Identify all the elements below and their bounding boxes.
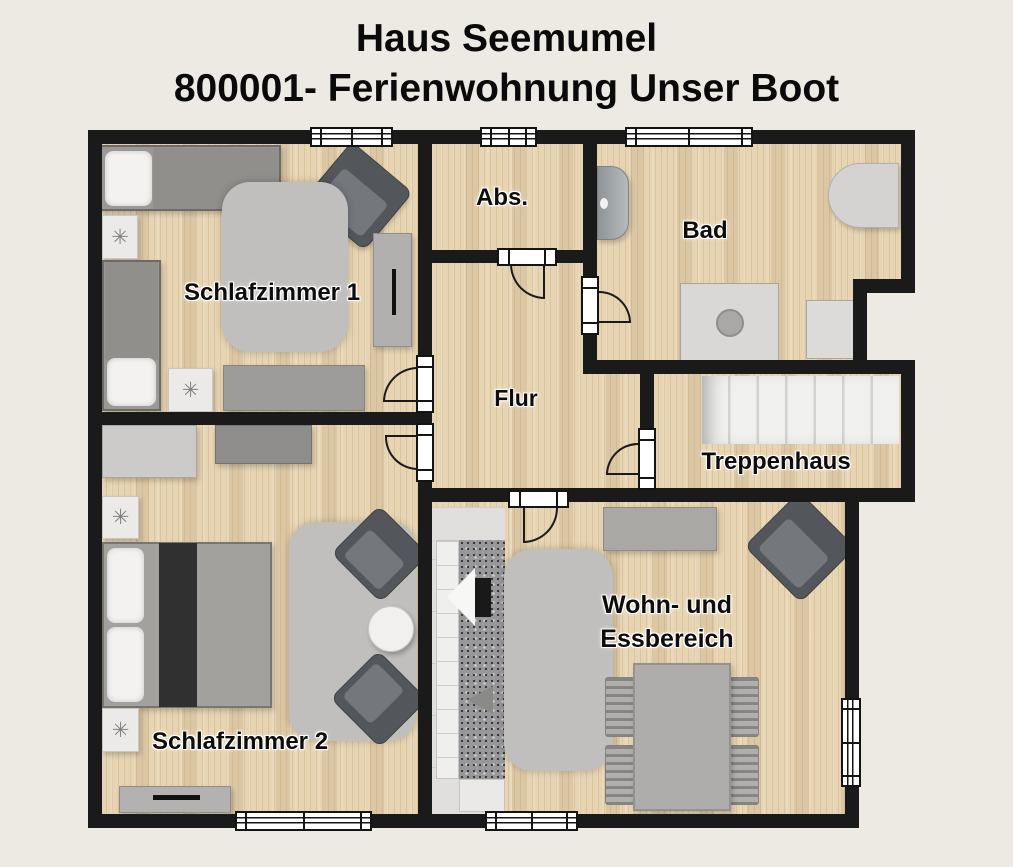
dining-table (633, 663, 731, 811)
window-schlafzimmer1 (310, 127, 393, 147)
nightstand: ✳ (102, 496, 139, 539)
plan-title-line2: 800001- Ferienwohnung Unser Boot (0, 64, 1013, 114)
label-schlafzimmer1: Schlafzimmer 1 (184, 276, 360, 310)
window-wohnbereich-right (841, 698, 861, 787)
plan-title: Haus Seemumel 800001- Ferienwohnung Unse… (0, 14, 1013, 114)
nightstand: ✳ (168, 368, 213, 412)
door-leaf (385, 435, 418, 437)
counter-end-cabinet (459, 779, 505, 812)
sideboard (603, 507, 717, 551)
door-leaf (543, 264, 545, 299)
sideboard (373, 233, 412, 347)
dining-chair (605, 677, 635, 737)
pillow (107, 627, 144, 702)
label-wohn-line2: Essbereich (600, 622, 733, 656)
door-leaf (606, 473, 638, 475)
shower-drain (716, 309, 744, 337)
sideboard-handle (153, 795, 200, 800)
label-treppenhaus: Treppenhaus (701, 445, 850, 479)
single-bed-2 (102, 260, 161, 411)
tv-screen (475, 578, 491, 617)
door-leaf (599, 321, 631, 323)
label-schlafzimmer2: Schlafzimmer 2 (152, 725, 328, 759)
nightstand: ✳ (102, 708, 139, 752)
label-wohn-line1: Wohn- und (600, 588, 733, 622)
wall-exterior-bottom (88, 814, 859, 828)
shower (680, 283, 779, 361)
door-wohnbereich (508, 490, 569, 508)
bench (223, 365, 365, 411)
floor-plan-page: { "title": { "line1": "Haus Seemumel", "… (0, 0, 1013, 867)
round-side-table (368, 606, 414, 652)
label-abstellraum: Abs. (476, 181, 528, 215)
label-flur: Flur (494, 381, 537, 415)
washing-machine (806, 300, 857, 359)
door-schlafzimmer2 (416, 423, 434, 482)
pillow (107, 548, 144, 623)
sideboard (119, 786, 231, 813)
label-bad: Bad (682, 214, 727, 248)
decor-star-icon: ✳ (182, 380, 200, 401)
wall-bedrooms-divider (88, 412, 432, 425)
decor-star-icon: ✳ (112, 720, 130, 741)
toilet (828, 163, 899, 228)
faucet (600, 198, 608, 209)
decor-star-icon: ✳ (112, 507, 130, 528)
nightstand: ✳ (102, 215, 138, 259)
window-bad (625, 127, 753, 147)
door-bad (581, 276, 599, 335)
staircase (702, 376, 899, 444)
label-wohn-essbereich: Wohn- und Essbereich (600, 588, 733, 656)
double-bed (102, 542, 272, 708)
pillow (107, 358, 156, 406)
plan-title-line1: Haus Seemumel (0, 14, 1013, 64)
bed-blanket (105, 262, 158, 360)
window-abstellraum (480, 127, 537, 147)
door-leaf (523, 508, 525, 543)
bed-runner (159, 543, 197, 707)
wall-exterior-left (88, 130, 102, 828)
decor-star-icon: ✳ (111, 227, 129, 248)
wall-exterior-right-bad (901, 130, 915, 293)
wardrobe (102, 425, 197, 478)
window-schlafzimmer2 (235, 811, 372, 831)
dining-chair (605, 745, 635, 805)
sink-triangle-icon (467, 686, 493, 714)
dining-chair (729, 677, 759, 737)
wall-treppenhaus-top (583, 360, 915, 374)
door-leaf (383, 400, 418, 402)
rug (222, 182, 348, 352)
door-treppenhaus (638, 428, 656, 490)
dresser (215, 425, 312, 464)
bathroom-sink (597, 166, 629, 240)
wall-treppenhaus-right (901, 360, 915, 502)
tv-projection-icon (447, 568, 475, 626)
wall-flur-bottom (418, 488, 859, 502)
window-wohnbereich-bottom (485, 811, 578, 831)
wall-bad-left (583, 130, 597, 374)
rug (504, 549, 613, 771)
sideboard-handle (392, 269, 396, 315)
dining-chair (729, 745, 759, 805)
door-schlafzimmer1 (416, 355, 434, 413)
pillow (105, 151, 152, 206)
